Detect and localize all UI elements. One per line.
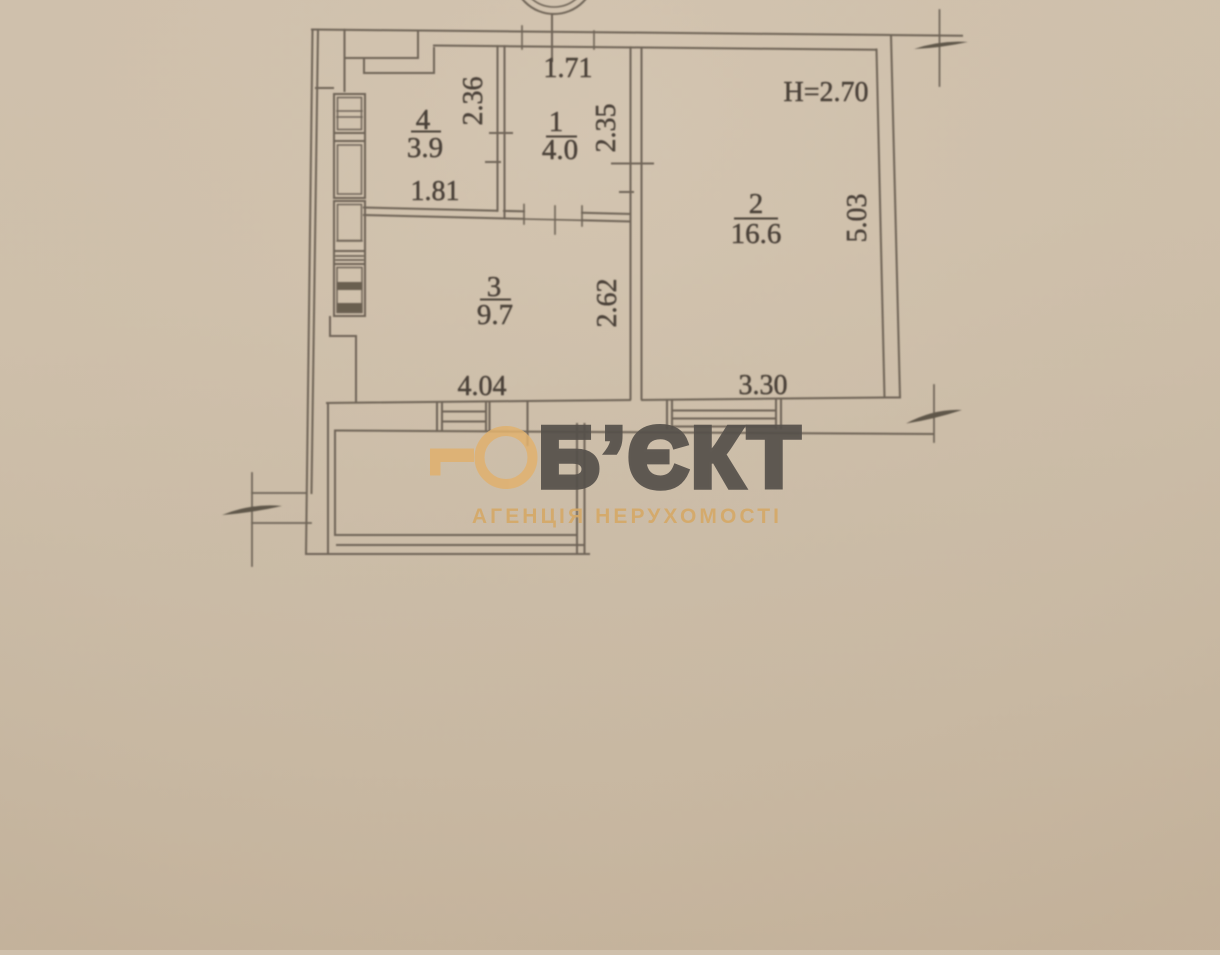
svg-text:Б’ЄКТ: Б’ЄКТ: [538, 410, 802, 506]
svg-text:2.36: 2.36: [458, 77, 489, 126]
svg-text:3.9: 3.9: [407, 132, 443, 164]
svg-text:АГЕНЦІЯ НЕРУХОМОСТІ: АГЕНЦІЯ НЕРУХОМОСТІ: [472, 505, 782, 528]
svg-text:4.04: 4.04: [458, 371, 507, 402]
svg-text:2.62: 2.62: [592, 279, 623, 328]
svg-text:1.71: 1.71: [544, 53, 593, 84]
svg-text:9.7: 9.7: [477, 299, 513, 331]
svg-text:2.35: 2.35: [591, 104, 622, 153]
svg-text:4.0: 4.0: [542, 134, 578, 166]
svg-text:1.81: 1.81: [411, 176, 460, 207]
svg-text:2: 2: [749, 188, 764, 220]
svg-text:3.30: 3.30: [739, 370, 788, 401]
svg-text:5.03: 5.03: [842, 194, 873, 243]
svg-text:16.6: 16.6: [731, 218, 782, 250]
svg-text:H=2.70: H=2.70: [783, 77, 868, 108]
